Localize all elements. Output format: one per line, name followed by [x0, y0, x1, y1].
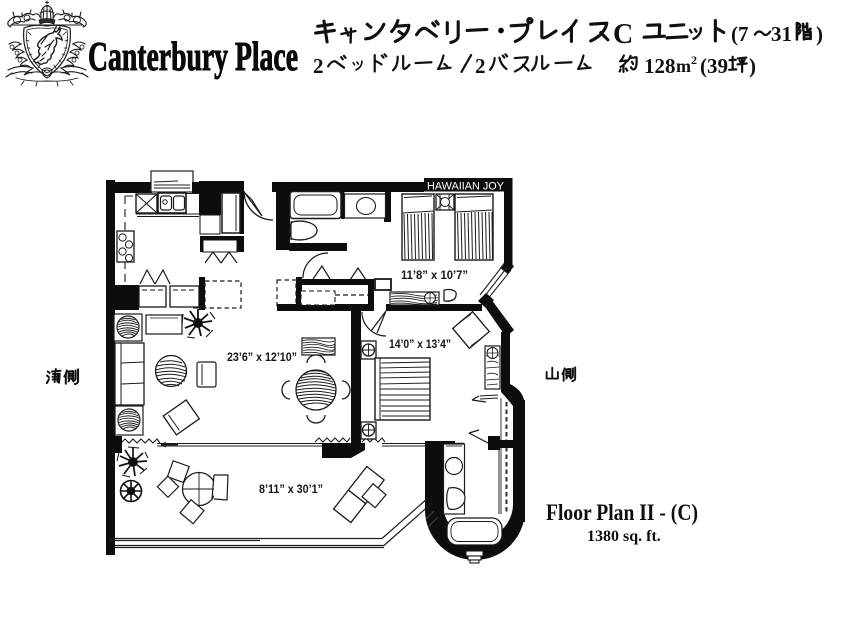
svg-text:): ) — [816, 22, 823, 46]
svg-text:Floor Plan II - (C): Floor Plan II - (C) — [546, 500, 698, 525]
svg-text:(7: (7 — [731, 22, 749, 46]
svg-text:HAWAIIAN JOY: HAWAIIAN JOY — [427, 181, 505, 193]
svg-text:11’8” x 10’7”: 11’8” x 10’7” — [401, 270, 468, 282]
svg-text:23’6” x 12’10”: 23’6” x 12’10” — [227, 352, 297, 364]
svg-text:2: 2 — [313, 54, 324, 78]
svg-text:1380 sq. ft.: 1380 sq. ft. — [587, 528, 661, 545]
svg-text:Canterbury Place: Canterbury Place — [88, 33, 298, 79]
svg-text:2: 2 — [475, 54, 486, 78]
svg-text:(39: (39 — [700, 54, 728, 78]
svg-text:2: 2 — [691, 53, 697, 67]
svg-text:31: 31 — [771, 22, 792, 46]
svg-text:C: C — [613, 19, 633, 50]
svg-text:128: 128 — [644, 54, 676, 78]
svg-text:8’11” x 30’1”: 8’11” x 30’1” — [259, 484, 323, 496]
svg-text:m: m — [676, 56, 691, 76]
svg-text:): ) — [749, 54, 756, 78]
svg-text:14’0” x 13’4”: 14’0” x 13’4” — [389, 339, 451, 351]
